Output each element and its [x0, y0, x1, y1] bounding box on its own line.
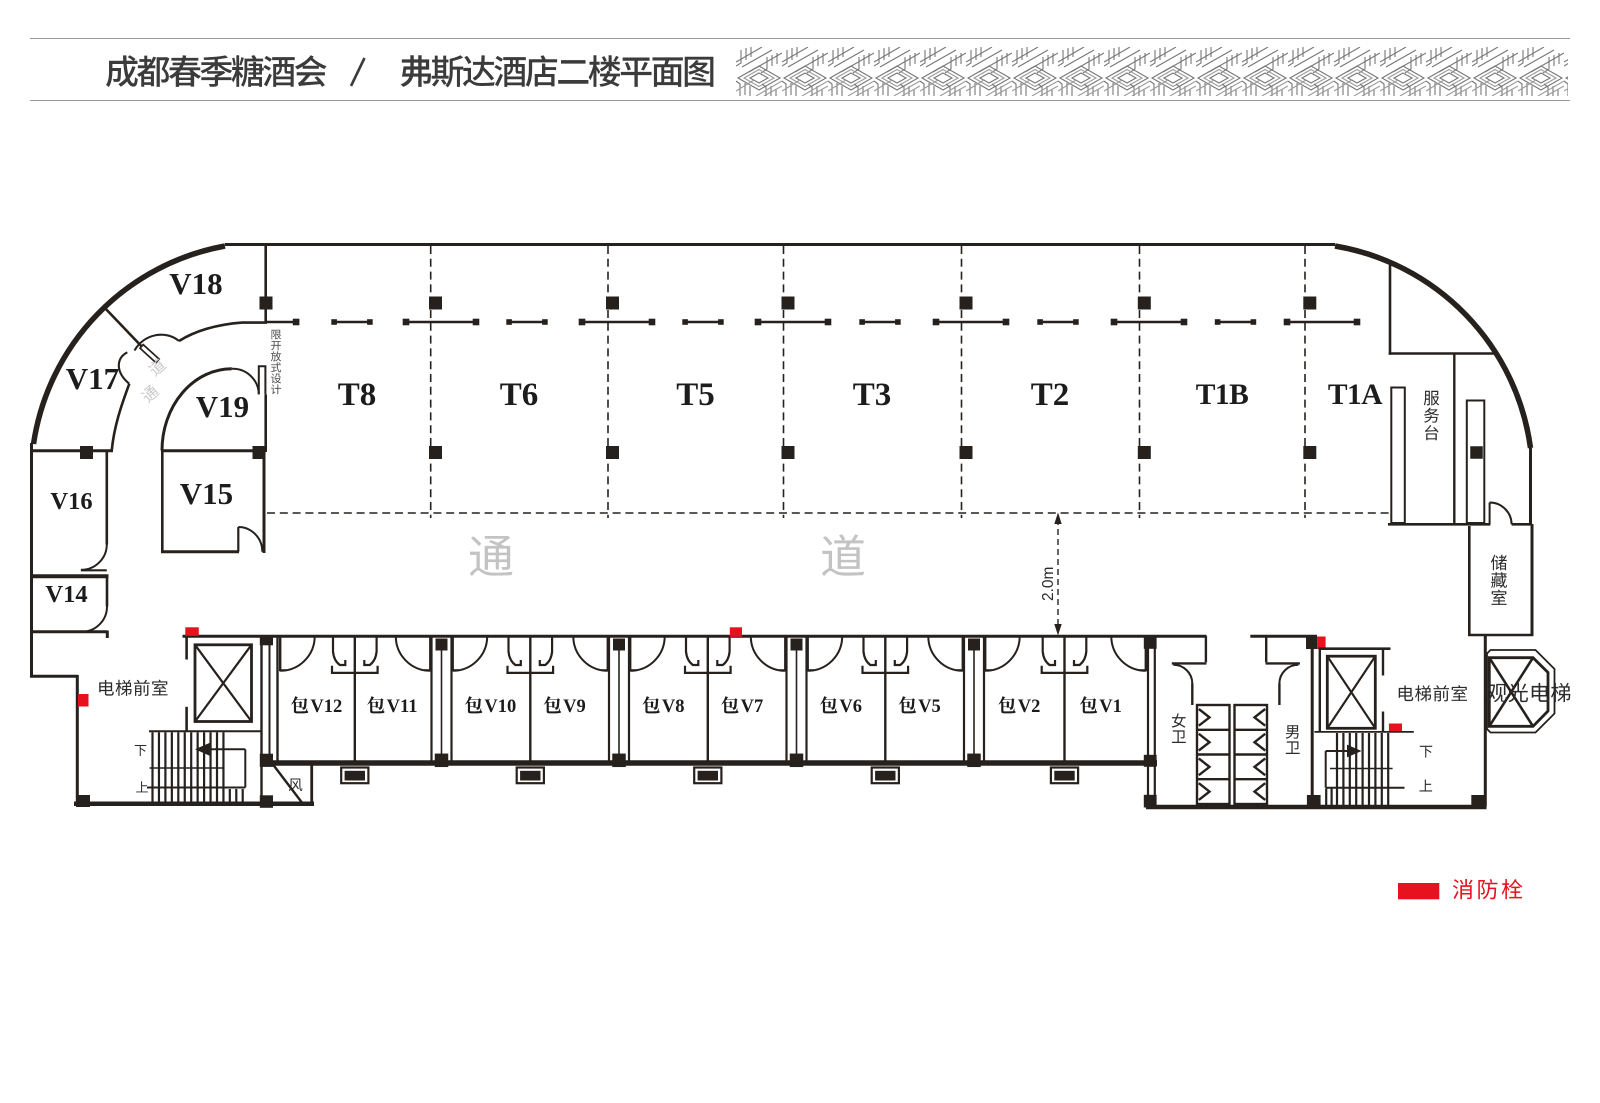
svg-text:V6: V6 — [839, 697, 862, 717]
svg-text:V17: V17 — [66, 361, 119, 396]
svg-text:V15: V15 — [180, 476, 233, 511]
svg-text:2.0m: 2.0m — [1040, 567, 1057, 601]
svg-text:V10: V10 — [484, 697, 516, 717]
svg-text:V1: V1 — [1099, 697, 1122, 717]
svg-text:T8: T8 — [338, 377, 377, 413]
svg-text:V11: V11 — [387, 697, 418, 717]
svg-text:T2: T2 — [1031, 377, 1070, 413]
svg-text:V14: V14 — [45, 581, 87, 608]
svg-text:V12: V12 — [310, 697, 342, 717]
svg-text:V18: V18 — [169, 266, 222, 301]
svg-text:V5: V5 — [918, 697, 941, 717]
svg-text:V9: V9 — [563, 697, 586, 717]
svg-text:T6: T6 — [500, 377, 539, 413]
svg-text:T3: T3 — [853, 377, 892, 413]
svg-text:T1B: T1B — [1196, 379, 1249, 411]
svg-text:V7: V7 — [741, 697, 764, 717]
svg-text:T5: T5 — [676, 377, 715, 413]
svg-text:V19: V19 — [196, 389, 249, 424]
svg-text:V2: V2 — [1018, 697, 1041, 717]
svg-text:V16: V16 — [50, 488, 92, 515]
svg-text:T1A: T1A — [1328, 379, 1383, 411]
svg-text:V8: V8 — [662, 697, 685, 717]
